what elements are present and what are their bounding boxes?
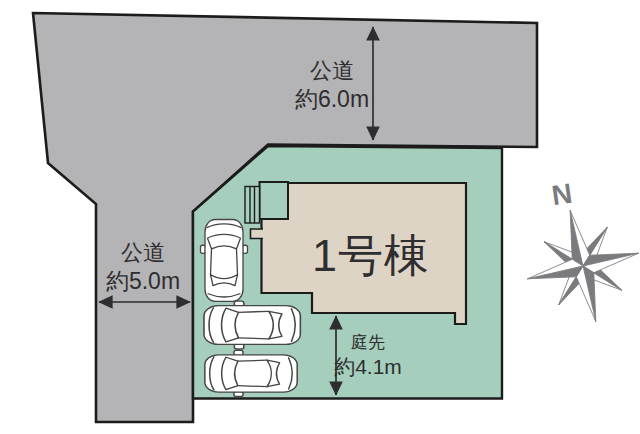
entrance-steps xyxy=(245,187,260,224)
compass-rose-icon xyxy=(515,198,640,335)
car-top-view-icon xyxy=(205,350,297,396)
entrance-porch xyxy=(260,182,289,219)
road-left-name: 公道 xyxy=(83,238,203,267)
car-top-view-icon xyxy=(201,220,248,302)
garden-name: 庭先 xyxy=(318,332,418,354)
garden-value: 約4.1m xyxy=(318,354,418,380)
side-step xyxy=(251,229,264,239)
compass-north-label: N xyxy=(550,178,574,213)
road-top-name: 公道 xyxy=(272,56,392,85)
road-top-value: 約6.0m xyxy=(272,85,392,114)
road-left-value: 約5.0m xyxy=(83,267,203,296)
building-label: 1号棟 xyxy=(266,229,476,283)
road-left-dimension-label: 公道 約5.0m xyxy=(83,238,203,296)
site-plan: 公道 約6.0m 公道 約5.0m 1号棟 庭先 約4.1m N xyxy=(0,0,640,434)
garden-dimension-label: 庭先 約4.1m xyxy=(318,332,418,380)
road-top-dimension-label: 公道 約6.0m xyxy=(272,56,392,114)
car-top-view-icon xyxy=(204,301,300,349)
